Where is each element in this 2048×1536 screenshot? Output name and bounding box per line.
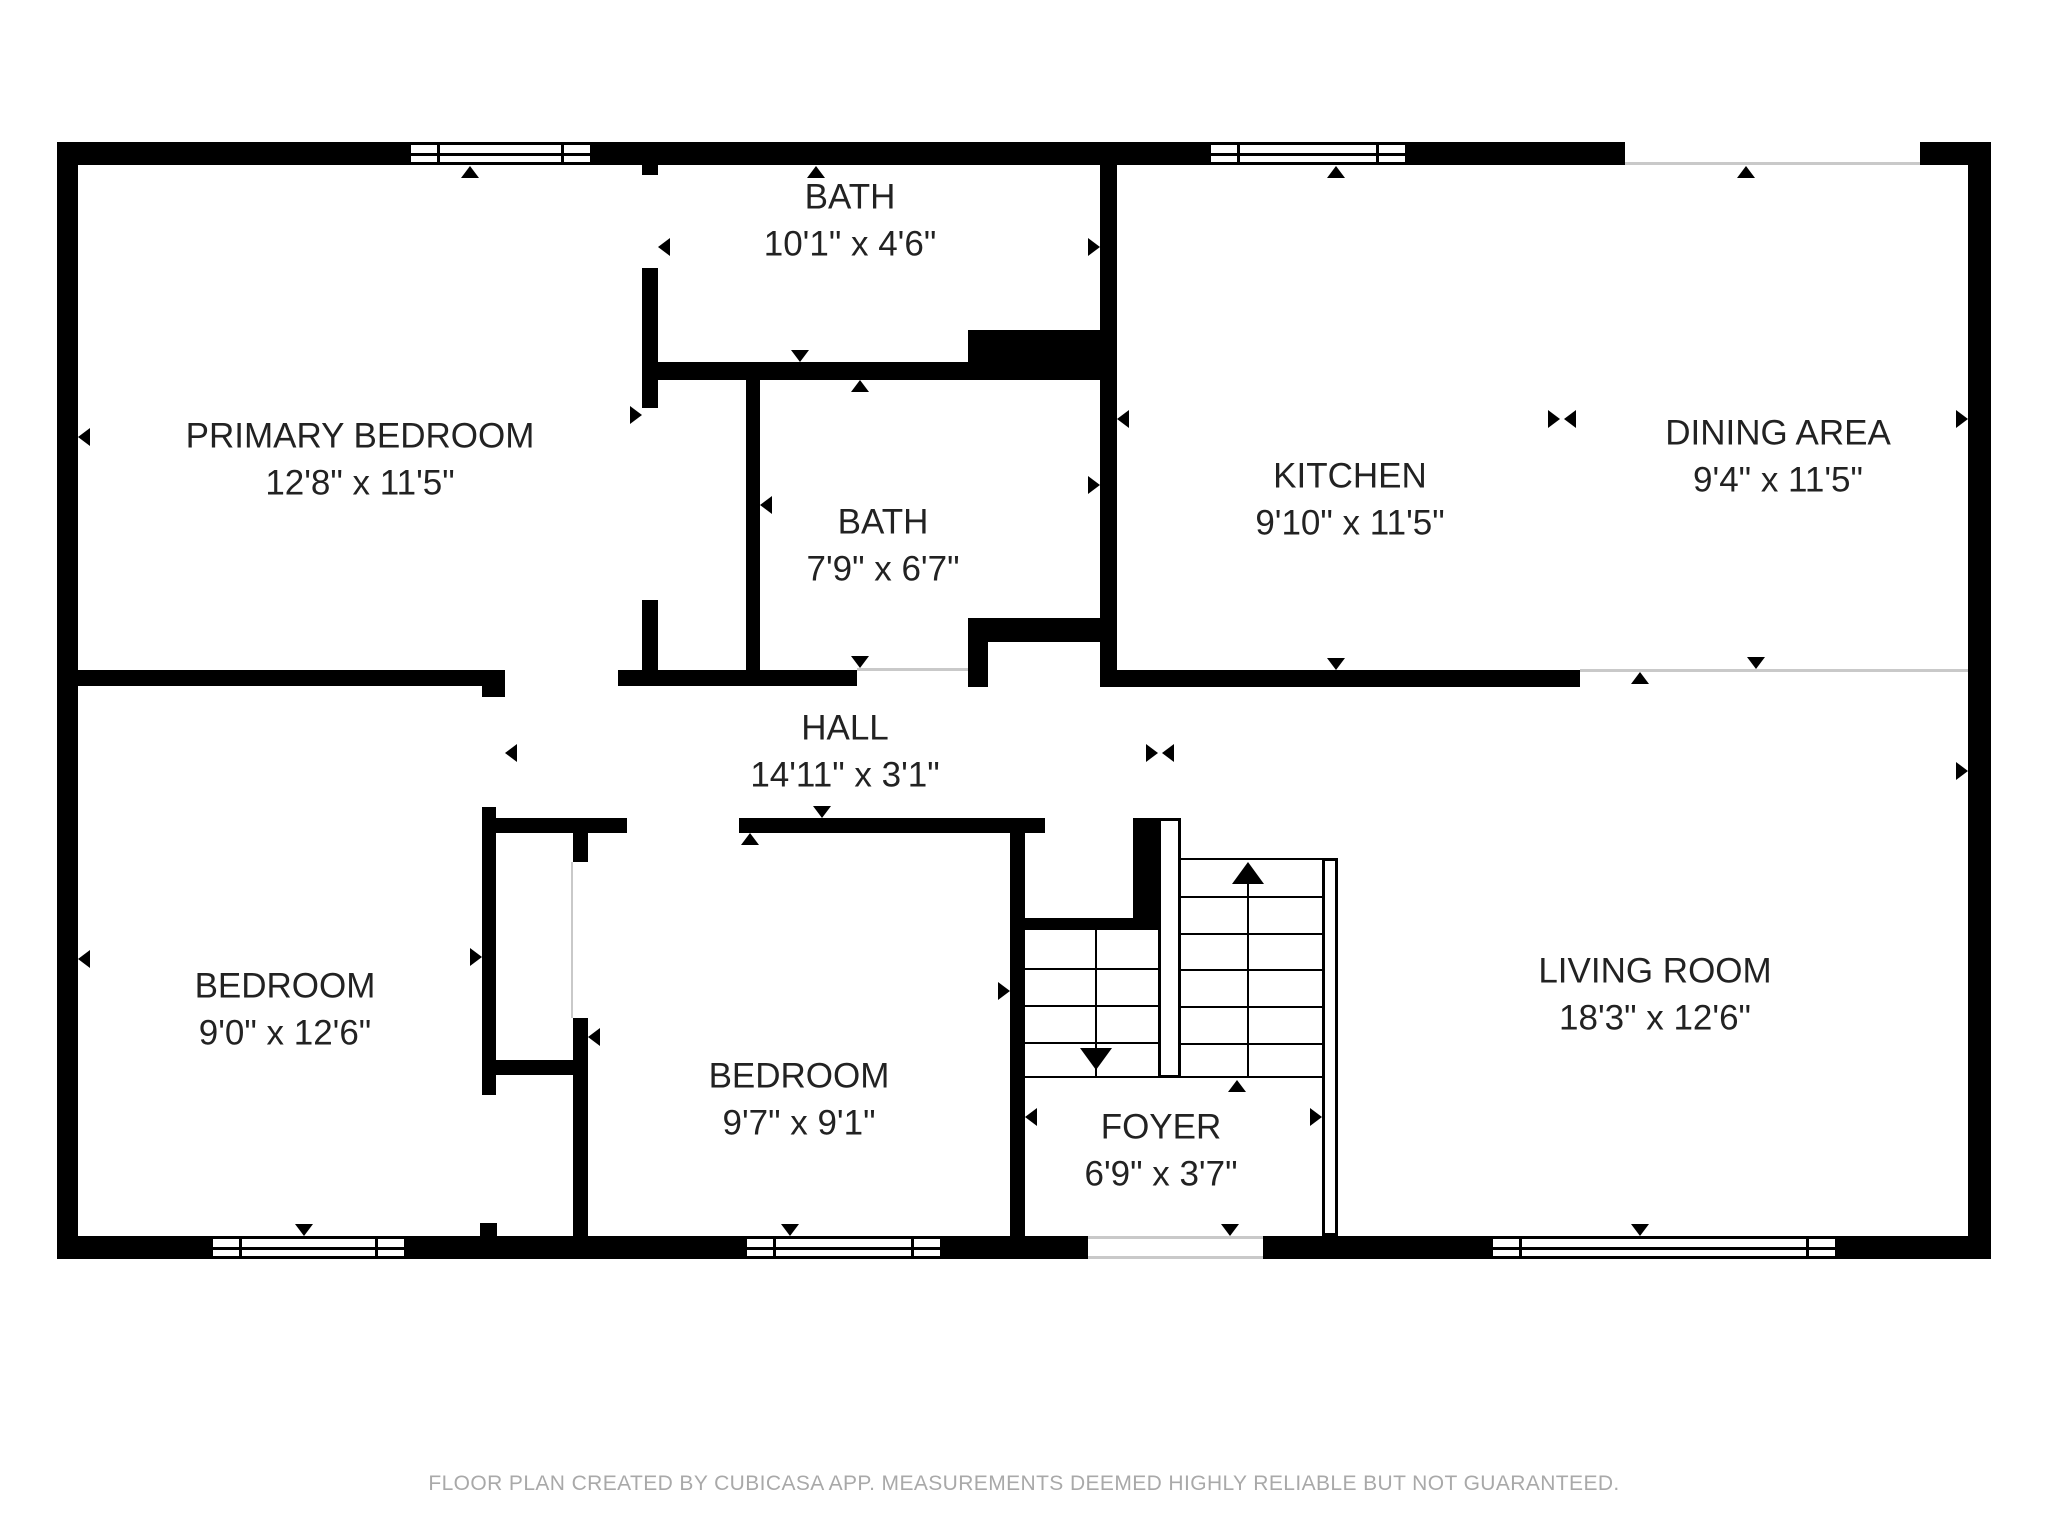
room-name: BEDROOM bbox=[709, 1053, 890, 1100]
room-dims: 9'10" x 11'5" bbox=[1255, 500, 1444, 547]
room-label-hall: HALL 14'11" x 3'1" bbox=[750, 705, 939, 798]
tick-living-right-wall-icon bbox=[1956, 762, 1968, 780]
tick-passage-stairs-b-icon bbox=[1162, 744, 1174, 762]
wall-hall-top-b bbox=[618, 670, 857, 686]
room-dims: 9'4" x 11'5" bbox=[1665, 457, 1891, 504]
outer-wall-bottom-a bbox=[57, 1236, 210, 1259]
tick-bedroom-left-closet-icon bbox=[470, 948, 482, 966]
outer-wall-top-a bbox=[57, 142, 408, 165]
room-label-bath-top: BATH 10'1" x 4'6" bbox=[764, 174, 937, 267]
tick-closet-door-center-icon bbox=[588, 1028, 600, 1046]
stairs-down-arrow-icon bbox=[1080, 1048, 1112, 1070]
stair-foyer-edge bbox=[1025, 1076, 1322, 1078]
footer-credit: FLOOR PLAN CREATED BY CUBICASA APP. MEAS… bbox=[428, 1472, 1619, 1496]
room-name: BATH bbox=[764, 174, 937, 221]
wall-closet-divider-h bbox=[482, 1060, 588, 1075]
tick-primary-left-wall-icon bbox=[78, 428, 90, 446]
wall-closet-divider-top bbox=[573, 833, 588, 862]
wall-toilet-ell-h bbox=[968, 618, 1105, 642]
outer-wall-top-b bbox=[593, 142, 1208, 165]
wall-stair-closet-bottom bbox=[1025, 918, 1158, 930]
stair-left-step-3 bbox=[1025, 1042, 1158, 1044]
room-name: LIVING ROOM bbox=[1538, 948, 1771, 995]
room-label-bedroom-center: BEDROOM 9'7" x 9'1" bbox=[709, 1053, 890, 1146]
tick-bedroom-center-right-icon bbox=[998, 982, 1010, 1000]
tick-foyer-stair-edge-icon bbox=[1228, 1080, 1246, 1092]
tick-hall-bath-opening-icon bbox=[851, 656, 869, 668]
tick-window-primary-icon bbox=[461, 166, 479, 178]
tick-hall-left-end-icon bbox=[505, 744, 517, 762]
tick-living-below-line-icon bbox=[1631, 672, 1649, 684]
stair-right-step-4 bbox=[1181, 1006, 1322, 1008]
tick-dining-right-wall-icon bbox=[1956, 410, 1968, 428]
room-dims: 12'8" x 11'5" bbox=[186, 460, 535, 507]
room-label-kitchen: KITCHEN 9'10" x 11'5" bbox=[1255, 453, 1444, 546]
stair-right-step-1 bbox=[1181, 896, 1322, 898]
outer-wall-bottom-d bbox=[1263, 1236, 1490, 1259]
window-bedroom-center bbox=[744, 1236, 943, 1259]
tick-passage-kitchen-dining-a-icon bbox=[1548, 410, 1560, 428]
tick-window-bedroom-left-icon bbox=[295, 1224, 313, 1236]
room-name: BATH bbox=[806, 499, 959, 546]
stair-left-step-1 bbox=[1025, 968, 1158, 970]
room-name: BEDROOM bbox=[195, 963, 376, 1010]
window-kitchen bbox=[1208, 142, 1408, 165]
tick-foyer-right-icon bbox=[1310, 1108, 1322, 1126]
tick-bath-divider-below-icon bbox=[851, 380, 869, 392]
stair-right-top-edge bbox=[1181, 858, 1322, 860]
tick-primary-closet-door-icon bbox=[630, 406, 642, 424]
room-dims: 18'3" x 12'6" bbox=[1538, 995, 1771, 1042]
window-primary-bedroom bbox=[408, 142, 593, 165]
stair-right-step-2 bbox=[1181, 933, 1322, 935]
wall-hall-bottom-b bbox=[739, 818, 1045, 833]
tick-dining-living-line-icon bbox=[1747, 657, 1765, 669]
window-bedroom-left bbox=[210, 1236, 407, 1259]
outer-wall-bottom-c bbox=[943, 1236, 1088, 1259]
wall-hall-stub bbox=[482, 670, 505, 697]
tick-foyer-left-icon bbox=[1025, 1108, 1037, 1126]
wall-closet-divider-bottom bbox=[573, 1018, 588, 1236]
opening-hall-bath bbox=[857, 668, 968, 671]
room-label-foyer: FOYER 6'9" x 3'7" bbox=[1084, 1104, 1237, 1197]
wall-bath-divider-thick bbox=[968, 330, 1102, 362]
tick-window-living-icon bbox=[1631, 1224, 1649, 1236]
room-name: FOYER bbox=[1084, 1104, 1237, 1151]
tick-kitchen-wall-lower-icon bbox=[1088, 476, 1100, 494]
outer-wall-bottom-b bbox=[407, 1236, 744, 1259]
tick-bath-divider-icon bbox=[791, 350, 809, 362]
stair-right-step-5 bbox=[1181, 1043, 1322, 1045]
tick-window-bedroom-center-icon bbox=[781, 1224, 799, 1236]
window-living-room bbox=[1490, 1236, 1838, 1259]
tick-passage-stairs-a-icon bbox=[1146, 744, 1158, 762]
room-label-bath-middle: BATH 7'9" x 6'7" bbox=[806, 499, 959, 592]
outer-wall-top-corner bbox=[1920, 142, 1991, 165]
stair-rail-right bbox=[1322, 858, 1338, 1236]
wall-primary-closet-stub-top bbox=[642, 163, 658, 175]
wall-hall-bottom-a bbox=[482, 818, 627, 833]
room-name: PRIMARY BEDROOM bbox=[186, 413, 535, 460]
stairs-up-arrow-icon bbox=[1232, 862, 1264, 884]
wall-hall-top-a bbox=[78, 670, 505, 686]
wall-primary-closet-mid bbox=[642, 268, 658, 408]
opening-dining-top bbox=[1625, 162, 1920, 165]
tick-bath-top-door-icon bbox=[658, 238, 670, 256]
room-dims: 6'9" x 3'7" bbox=[1084, 1151, 1237, 1198]
room-name: KITCHEN bbox=[1255, 453, 1444, 500]
room-label-bedroom-left: BEDROOM 9'0" x 12'6" bbox=[195, 963, 376, 1056]
stair-right-guideline bbox=[1247, 880, 1249, 1076]
outer-wall-left bbox=[57, 142, 78, 1259]
room-label-primary-bedroom: PRIMARY BEDROOM 12'8" x 11'5" bbox=[186, 413, 535, 506]
wall-kitchen-left bbox=[1100, 163, 1117, 687]
room-dims: 10'1" x 4'6" bbox=[764, 221, 937, 268]
wall-hall-top-c bbox=[1100, 670, 1580, 687]
floor-plan: PRIMARY BEDROOM 12'8" x 11'5" BATH 10'1"… bbox=[0, 0, 2048, 1536]
room-dims: 9'0" x 12'6" bbox=[195, 1010, 376, 1057]
opening-foyer-entry-bottom bbox=[1088, 1256, 1263, 1259]
room-label-living-room: LIVING ROOM 18'3" x 12'6" bbox=[1538, 948, 1771, 1041]
room-dims: 9'7" x 9'1" bbox=[709, 1100, 890, 1147]
tick-kitchen-wall-mid-icon bbox=[1117, 410, 1129, 428]
room-name: DINING AREA bbox=[1665, 410, 1891, 457]
stair-right-step-3 bbox=[1181, 969, 1322, 971]
wall-bedroom-left-right-stub bbox=[480, 1223, 497, 1236]
stair-left-step-2 bbox=[1025, 1005, 1158, 1007]
tick-window-kitchen-icon bbox=[1327, 166, 1345, 178]
wall-bath-divider bbox=[658, 362, 1102, 380]
tick-bedroom-center-below-icon bbox=[741, 833, 759, 845]
outer-wall-top-c bbox=[1408, 142, 1625, 165]
tick-kitchen-hall-wall-icon bbox=[1327, 658, 1345, 670]
outer-wall-bottom-e bbox=[1838, 1236, 1991, 1259]
tick-kitchen-wall-upper-icon bbox=[1088, 238, 1100, 256]
opening-closet-center-bedroom bbox=[571, 862, 573, 1018]
tick-bedroom-left-wall-icon bbox=[78, 950, 90, 968]
opening-foyer-entry-top bbox=[1088, 1236, 1263, 1239]
tick-passage-kitchen-dining-b-icon bbox=[1564, 410, 1576, 428]
wall-bath-middle-left bbox=[746, 380, 760, 672]
room-dims: 7'9" x 6'7" bbox=[806, 546, 959, 593]
room-dims: 14'11" x 3'1" bbox=[750, 752, 939, 799]
wall-toilet-ell-v bbox=[968, 642, 988, 687]
tick-bedroom-center-door-icon bbox=[813, 806, 831, 818]
tick-foyer-entry-icon bbox=[1221, 1224, 1239, 1236]
wall-stair-closet-right bbox=[1133, 818, 1158, 930]
stair-rail-left bbox=[1158, 818, 1181, 1078]
outer-wall-right bbox=[1968, 142, 1991, 1259]
wall-bedroom-left-right bbox=[482, 807, 496, 1095]
tick-bath-middle-wall-icon bbox=[760, 496, 772, 514]
room-label-dining-area: DINING AREA 9'4" x 11'5" bbox=[1665, 410, 1891, 503]
wall-bedroom-center-right bbox=[1010, 833, 1025, 1236]
room-name: HALL bbox=[750, 705, 939, 752]
wall-primary-closet-low bbox=[642, 600, 658, 672]
tick-opening-dining-icon bbox=[1737, 166, 1755, 178]
